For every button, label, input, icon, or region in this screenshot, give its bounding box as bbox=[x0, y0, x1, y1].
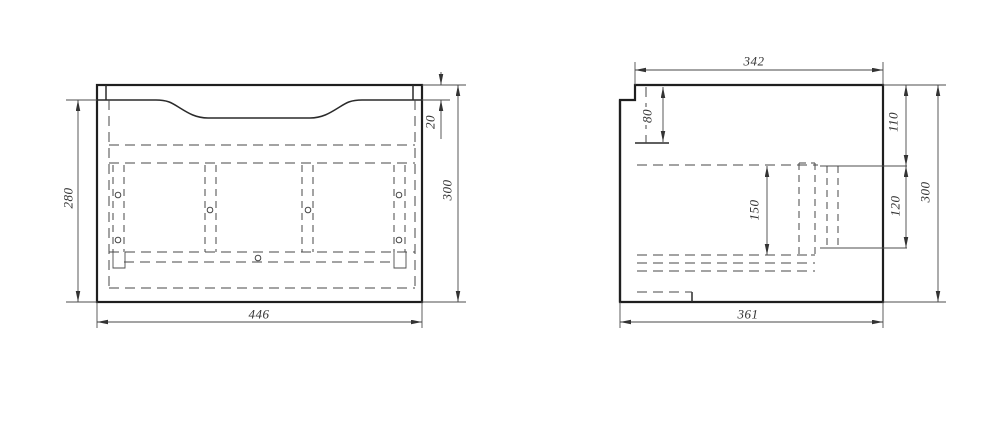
technical-drawing: 446 280 300 20 342 361 300 110 120 80 15… bbox=[0, 0, 1000, 435]
bracket-left bbox=[113, 252, 125, 268]
drawing-linework bbox=[0, 0, 1000, 435]
drawer-front-top-edge-with-handle-recess bbox=[97, 100, 422, 118]
bracket-right bbox=[394, 252, 406, 268]
front-view-outline bbox=[97, 85, 422, 302]
dim-side-height: 300 bbox=[919, 182, 932, 203]
dim-side-middle-segment: 120 bbox=[889, 196, 902, 217]
dim-front-top-rail: 20 bbox=[424, 115, 437, 129]
dim-front-height-right: 300 bbox=[441, 180, 454, 201]
dim-side-notch-height: 80 bbox=[641, 107, 654, 125]
front-view bbox=[66, 72, 466, 328]
dim-side-width-bottom: 361 bbox=[738, 308, 759, 321]
front-view-hidden-lines bbox=[109, 100, 415, 288]
front-view-dimension-lines bbox=[66, 72, 466, 328]
dim-front-width: 446 bbox=[249, 308, 270, 321]
dim-side-upper-segment: 110 bbox=[887, 112, 900, 132]
front-view-holes bbox=[115, 192, 402, 261]
dim-front-height-left: 280 bbox=[62, 188, 75, 209]
dim-side-inner-height: 150 bbox=[748, 198, 761, 223]
side-view-hidden-lines bbox=[637, 87, 838, 292]
dim-side-width-top: 342 bbox=[744, 55, 765, 68]
side-carcass-outline bbox=[620, 85, 883, 302]
